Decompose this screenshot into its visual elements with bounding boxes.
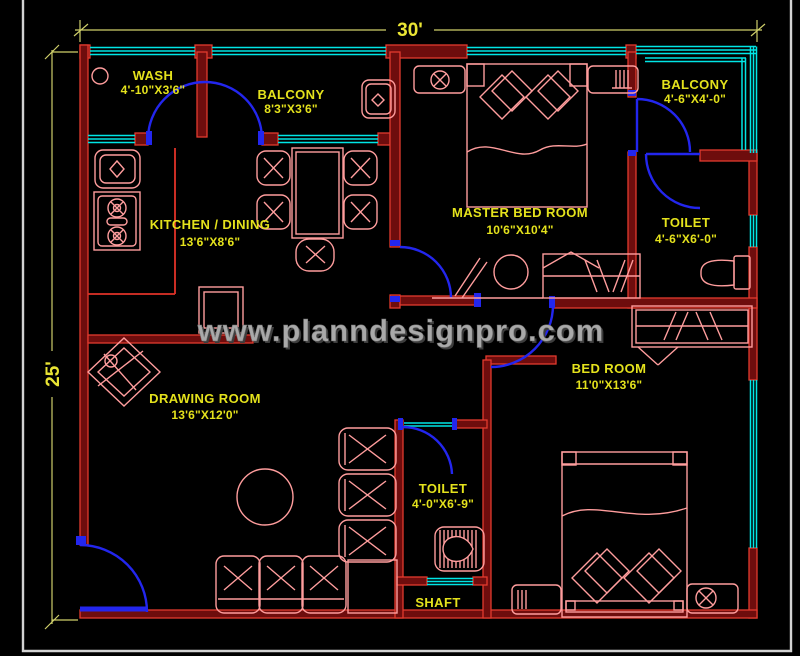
size-bed-room: 11'0"X13'6" bbox=[576, 378, 643, 392]
watermark: www.planndesignpro.com www.planndesignpr… bbox=[197, 313, 607, 350]
floor-plan-canvas: 30' 25' WASH 4'-10"X3'6" BALCONY 8'3"X3'… bbox=[0, 0, 800, 656]
size-master-bed-room: 10'6"X10'4" bbox=[486, 223, 553, 237]
label-bed-room: BED ROOM bbox=[572, 361, 647, 376]
dimension-width-label: 30' bbox=[397, 20, 423, 41]
label-drawing-room: DRAWING ROOM bbox=[149, 391, 261, 406]
label-balcony-top: BALCONY bbox=[257, 87, 324, 102]
size-toilet-top: 4'-6"X6'-0" bbox=[655, 232, 717, 246]
label-kitchen-dining: KITCHEN / DINING bbox=[150, 217, 271, 232]
floor-plan-drawing: 30' 25' WASH 4'-10"X3'6" BALCONY 8'3"X3'… bbox=[0, 0, 800, 656]
label-shaft: SHAFT bbox=[415, 595, 460, 610]
size-drawing-room: 13'6"X12'0" bbox=[171, 408, 238, 422]
size-balcony-top: 8'3"X3'6" bbox=[264, 102, 318, 116]
label-balcony-right: BALCONY bbox=[661, 77, 728, 92]
label-master-bed-room: MASTER BED ROOM bbox=[452, 205, 588, 220]
label-toilet-bottom: TOILET bbox=[419, 481, 467, 496]
size-wash: 4'-10"X3'6" bbox=[121, 83, 186, 97]
label-wash: WASH bbox=[133, 68, 174, 83]
dimension-height-label: 25' bbox=[43, 361, 64, 387]
label-toilet-top: TOILET bbox=[662, 215, 710, 230]
size-toilet-bottom: 4'-0"X6'-9" bbox=[412, 497, 474, 511]
watermark-text: www.planndesignpro.com bbox=[197, 313, 605, 348]
size-balcony-right: 4'-6"X4'-0" bbox=[664, 92, 726, 106]
size-kitchen-dining: 13'6"X8'6" bbox=[180, 235, 240, 249]
